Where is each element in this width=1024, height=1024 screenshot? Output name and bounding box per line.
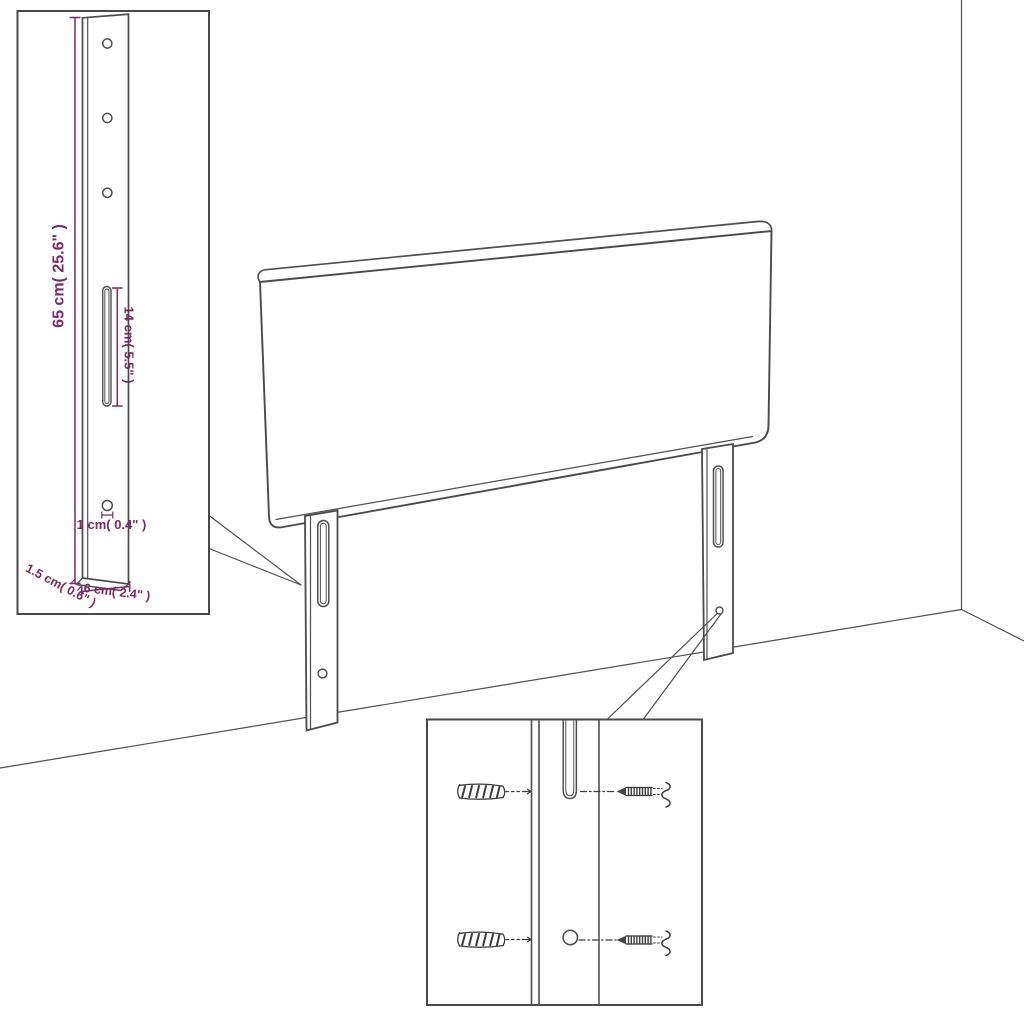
floor-line-right	[962, 610, 1024, 642]
headboard-right-leg	[702, 444, 733, 660]
slot-dimension-label: 14 cm( 5.5" )	[122, 307, 137, 384]
hole-dimension-label: 1 cm( 0.4" )	[77, 517, 147, 532]
bracket-body	[83, 14, 129, 584]
bracket-detail-inset: 65 cm( 25.6" ) 14 cm( 5.5" ) 1 cm( 0.4" …	[18, 11, 210, 614]
height-dimension-label: 65 cm( 25.6" )	[51, 224, 68, 328]
mounting-inset-frame	[427, 720, 702, 1006]
mounting-detail-inset	[427, 720, 702, 1006]
headboard-front-face	[260, 231, 772, 527]
headboard-left-leg	[305, 511, 338, 731]
left-leg-body	[305, 511, 338, 731]
assembly-diagram: 65 cm( 25.6" ) 14 cm( 5.5" ) 1 cm( 0.4" …	[0, 0, 1024, 1024]
diagram-drawing: 65 cm( 25.6" ) 14 cm( 5.5" ) 1 cm( 0.4" …	[0, 0, 1024, 1024]
headboard-panel	[258, 221, 771, 527]
